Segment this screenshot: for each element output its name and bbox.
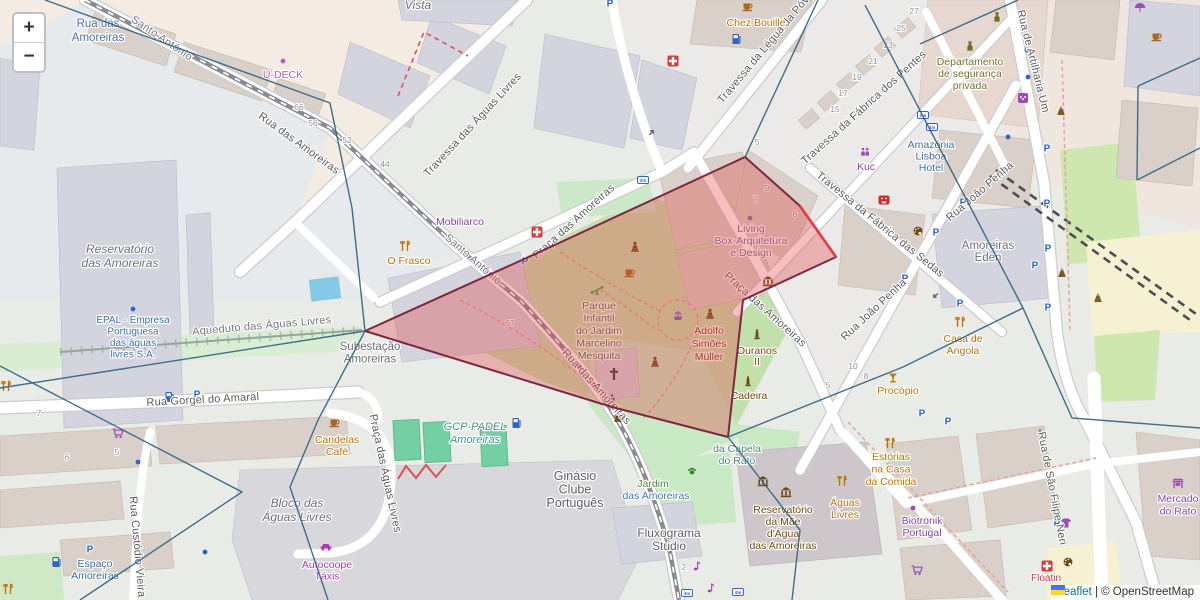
parking-icon: P [1045,303,1052,314]
base-map: PPPPPPPPPPPPPPPPitmitmitmitmitm 66565244… [0,0,1200,600]
parking-icon: P [945,417,952,428]
pharmacy-icon [1042,561,1053,572]
label-mobiliarco: Mobiliarco [436,216,484,228]
label-cadeira: Cadeira [731,390,768,402]
label-o-frasco: O Frasco [387,255,430,267]
house-number: 5 [115,447,120,457]
dot-icon [911,506,916,511]
house-number: 21 [868,56,878,66]
parking-icon: P [1045,244,1052,255]
label-gcp-padel: GCP-PADELAmoreiras [444,421,507,446]
label-vista: Vista [405,0,432,12]
label-aguas-livres: ÁguasLivres [830,496,860,521]
house-number: 7 [37,408,42,418]
svg-text:itm: itm [684,591,691,596]
house-number: 52 [342,135,352,145]
water-pool [309,276,341,301]
label-chez-bouille: Chez Bouille [727,17,786,29]
house-number: 10 [848,361,858,371]
parking-icon: P [957,299,964,310]
zoom-in-button[interactable]: + [14,14,44,42]
fuel-icon [53,557,61,567]
house-number: 17 [838,88,848,98]
parking-icon: P [1044,144,1051,155]
house-number: 25 [896,23,906,33]
zoom-out-button[interactable]: − [14,42,44,71]
ukraine-flag-icon [1051,585,1065,595]
dot-icon [203,550,208,555]
parking-icon: P [1044,199,1051,210]
svg-text:itm: itm [640,178,647,183]
house-number: 8 [864,371,869,381]
palette-icon [914,227,923,236]
transit-icon: itm [682,590,693,597]
label-capela-do-rato: da Capelado Rato [713,443,761,467]
transit-icon: itm [733,589,744,596]
label-u-deck: U-DECK [263,69,303,81]
map-canvas[interactable]: PPPPPPPPPPPPPPPPitmitmitmitmitm 66565244… [0,0,1200,600]
dot-icon [131,307,136,312]
label-mercado-do-rato: Mercadodo Rato [1158,493,1199,518]
fuel-icon [513,418,521,428]
zoom-control: + − [12,12,46,73]
dot-icon [281,59,286,64]
house-number: 19 [852,72,862,82]
dot-icon [1026,75,1031,80]
label-procopio: Procópio [877,385,919,397]
label-jardim: Jardim [637,478,669,490]
dot-icon [1006,135,1011,140]
label-jardim-das-amoreiras: das Amoreiras [622,490,689,502]
parking-icon: P [1032,261,1039,272]
label-reservatorio-das-amoreiras: Reservatóriodas Amoreiras [82,242,159,270]
label-casa-de-angola: Casa deAngola [943,333,982,357]
parking-icon: P [933,228,940,239]
house-number: 6 [65,452,70,462]
parking-icon: P [607,0,614,10]
label-biotronik-portugal: BiotronikPortugal [902,515,944,539]
attribution-bar: Leaflet | © OpenStreetMap [1051,585,1200,600]
reservoir-building [57,160,183,428]
svg-text:itm: itm [735,590,742,595]
casino-icon [1018,93,1028,103]
transit-icon: itm [638,177,649,184]
openstreetmap-link[interactable]: © OpenStreetMap [1101,586,1194,598]
attribution-separator: | [1095,586,1098,598]
cafe-icon [743,4,753,12]
pharmacy-icon [532,227,543,238]
dot-icon [136,460,141,465]
label-floatin: Floatin [1031,573,1061,584]
pharmacy-icon [668,56,679,67]
parking-icon: P [87,545,94,556]
house-number: 5 [755,137,760,147]
theatre-icon [879,196,890,205]
house-number: 5 [826,380,831,390]
cafe-icon [330,420,340,428]
parking-icon: P [919,409,926,420]
house-number: 66 [294,102,304,112]
house-number: 2 [682,562,687,572]
palette-icon [1064,558,1073,567]
label-kuc: Kuc [857,161,875,173]
fuel-icon [733,34,741,44]
house-number: 56 [308,118,318,128]
house-number: 15 [830,104,840,114]
cafe-icon [1152,34,1162,42]
house-number: 27 [909,6,919,16]
label-bloco-das-aguas-livres: Bloco dasÁguas Livres [261,496,331,524]
house-number: 44 [380,159,390,169]
label-estorias-na-casa-da-comida: Estóriasna Casada Comida [866,451,917,488]
